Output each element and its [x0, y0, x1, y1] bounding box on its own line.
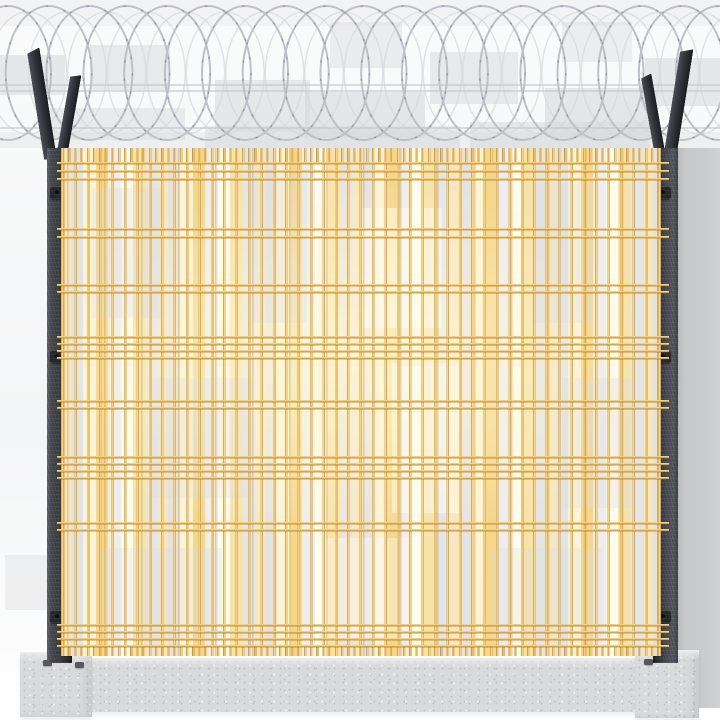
mesh-horizontal-wire [57, 624, 669, 626]
fence-product-photo [0, 0, 720, 720]
mesh-top-loops [62, 148, 660, 163]
mesh-horizontal-wire [57, 291, 669, 293]
mesh-horizontal-wire [57, 456, 669, 458]
mesh-horizontal-wire [57, 178, 669, 180]
mesh-horizontal-wire [57, 529, 669, 531]
mesh-horizontal-wire [57, 228, 669, 230]
mesh-horizontal-wire [57, 357, 669, 359]
mesh-horizontal-wire [57, 407, 669, 409]
mesh-horizontal-wire [57, 400, 669, 402]
concrete-base-beam [60, 658, 660, 712]
mesh-horizontal-wire [57, 645, 669, 647]
mesh-horizontal-wire [57, 477, 669, 479]
mesh-horizontal-wire [57, 162, 669, 164]
mesh-horizontal-wire [57, 284, 669, 286]
mesh-horizontal-wire [57, 470, 669, 472]
mesh-panel [62, 148, 660, 656]
mesh-horizontal-wire [57, 522, 669, 524]
mesh-horizontal-wire [57, 170, 669, 172]
mesh-horizontal-wire [57, 463, 669, 465]
mesh-horizontal-wire [57, 236, 669, 238]
mesh-horizontal-wire [57, 631, 669, 633]
anchor-bolt [75, 662, 84, 668]
anchor-bolt [644, 659, 653, 665]
mesh-horizontal-wire [57, 343, 669, 345]
beam-top-face [60, 658, 660, 665]
mesh-horizontal-wire [57, 638, 669, 640]
mesh-horizontal-wire [57, 350, 669, 352]
mesh-horizontal-wire [57, 336, 669, 338]
